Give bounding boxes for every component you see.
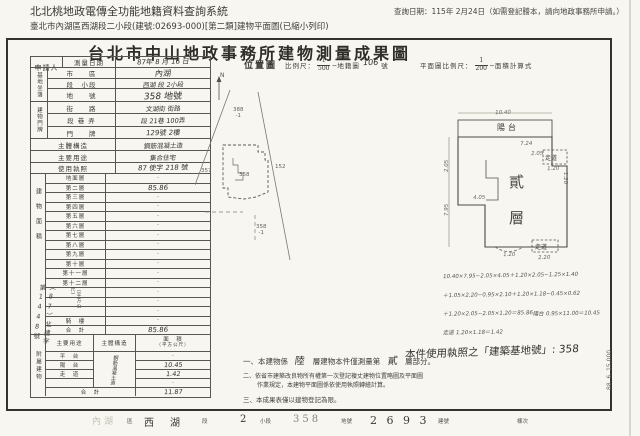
- survey-date-value: 87年 8 月 16 日: [136, 57, 190, 67]
- floor-plan-scale-label: 平面圖比例尺：: [420, 60, 473, 70]
- attached-row-value: 10.45: [135, 360, 210, 369]
- map-ref-label: ─地籍圖: [332, 60, 359, 70]
- floor-plan-sketch: 陽台 貳 層 走道 走道 10.407.242.051.201.202.057.…: [435, 95, 610, 270]
- section-value: 西湖 段 2小段: [142, 78, 184, 88]
- use-label: 主要用途: [58, 152, 88, 162]
- floor-row-label: 第十一層: [45, 268, 105, 278]
- footer-value: 西 湖: [144, 414, 183, 429]
- plan-dimension: 2.05: [444, 160, 450, 173]
- floor-area-group-label: 建物面積: [34, 188, 43, 248]
- location-map-header: 位置圖 比例尺： 1 500 ─地籍圖 106 號: [244, 58, 389, 72]
- door-group-cell: 建物門牌: [30, 101, 47, 138]
- location-map-scale-label: 比例尺：: [285, 60, 315, 70]
- city-value: 內湖: [154, 67, 171, 78]
- note-1-text-b: 層建物本件僅測量第: [313, 357, 381, 366]
- floor-row-label: 第九層: [45, 249, 105, 259]
- floor-char: 層: [509, 207, 524, 228]
- footer-label: 小段: [260, 417, 271, 425]
- survey-date-value-cell: 87年 8 月 16 日: [115, 56, 210, 67]
- street-value: 文湖街 街路: [145, 102, 181, 113]
- parcel-number: 358: [239, 173, 250, 179]
- attached-structure-value: 鋼筋混凝土造: [109, 354, 120, 384]
- system-title: 北北桃地政電傳全功能地籍資料查詢系統: [30, 3, 228, 19]
- survey-date-label-cell: 測量日期: [62, 56, 115, 67]
- location-map-scale-fraction: 1 500: [317, 58, 330, 72]
- footer-value: 2 6 9 3: [370, 414, 429, 427]
- floor-row-label: 騎 樓: [45, 316, 105, 326]
- door-group-label: 建物門牌: [35, 107, 43, 133]
- structure-value: 鋼筋混凝土造: [143, 139, 183, 150]
- floor-row-value: ·: [105, 306, 210, 316]
- site-group-cell: 基地坐落: [30, 67, 47, 101]
- lane-value: 段 21巷 100弄: [140, 115, 186, 126]
- street-label: 街 路: [67, 103, 97, 113]
- note-2-line-2: 作業規定，本建物平面圖係依使用執照轉繪計算。: [257, 380, 389, 389]
- plan-dimension: 1.20: [503, 252, 516, 258]
- plan-dimension: 7.24: [520, 141, 533, 147]
- floor-number-char: 貳: [509, 171, 524, 192]
- calc-line: 10.40×7.95−2.05×4.05＋1.20×2.05−1.25×1.40: [442, 271, 578, 282]
- attached-group-cell: 附屬建物: [30, 334, 45, 397]
- attached-row-use: 合 計: [45, 387, 135, 396]
- attached-group-label: 附屬建物: [34, 351, 42, 381]
- scale-denominator: 500: [317, 65, 330, 73]
- calc-line: 陽台 0.95×11.00＝10.45: [532, 309, 600, 319]
- attached-row-use: [45, 378, 93, 387]
- attached-row-value: 1.42: [135, 369, 210, 378]
- footer-label: 建號: [438, 417, 449, 425]
- note-1-hand-level: 貳: [387, 352, 399, 367]
- plan-dimension: 10.40: [495, 110, 512, 116]
- footer-value: 2: [240, 414, 249, 425]
- footer-label: 段: [202, 417, 208, 425]
- attached-header-use: 主要用途: [56, 339, 82, 347]
- footer-label: 地號: [341, 417, 352, 425]
- location-map-title: 位置圖: [244, 58, 277, 71]
- plan-dimension: 2.20: [538, 255, 551, 261]
- map-ref-suffix: 號: [381, 60, 389, 70]
- floor-plan-scale-fraction: 1 200: [475, 58, 488, 72]
- site-group-label: 基地坐落: [35, 72, 43, 98]
- corridor-label-bottom: 走道: [535, 242, 547, 251]
- license-value: 87 使字 218 號: [137, 163, 188, 173]
- door-label: 門 牌: [67, 128, 97, 138]
- attached-row-use: 陽 台: [45, 360, 93, 369]
- attached-row-use: 平 台: [45, 351, 93, 360]
- floor-row-value: ·: [105, 316, 210, 326]
- note-1-text-a: 一、本建物係: [243, 357, 288, 366]
- floor-row-label: 第五層: [45, 211, 105, 221]
- attached-header-area-unit: （平方公尺）: [157, 343, 190, 349]
- floor-area-unit-label: （平方公尺）: [69, 287, 81, 316]
- plan-dimension: 4.05: [473, 195, 486, 201]
- parcel-number: 357: [201, 169, 212, 175]
- note-1-hand-floors: 陸: [294, 352, 306, 367]
- note-3: 三、本成果表僅以建物登記為限。: [243, 394, 341, 404]
- plan-dimension: 2.05: [531, 151, 544, 157]
- plan-dimension: 1.20: [562, 172, 568, 185]
- attached-header-structure: 主體構造: [101, 339, 127, 347]
- door-value: 129號 2樓: [145, 127, 180, 138]
- attached-row-value: 11.87: [135, 387, 210, 396]
- license-label: 使用執照: [58, 163, 88, 173]
- section-label: 段 小段: [67, 79, 97, 89]
- scan-edge-line: [629, 0, 631, 436]
- floor-row-label: 第二層: [45, 183, 105, 193]
- floor-row-label: 第十層: [45, 259, 105, 269]
- print-line: 臺北市內湖區西湖段二小段(建號:02693-000)[第二類]建物平面圖(已縮小…: [30, 20, 329, 32]
- map-ref-number: 106: [362, 58, 378, 67]
- attached-row-value: ·: [135, 378, 210, 387]
- balcony-label: 陽台: [497, 122, 519, 133]
- floor-row-label: 第七層: [45, 230, 105, 240]
- plan-dimension: 7.95: [444, 204, 450, 217]
- floor-row-label: 第三層: [45, 192, 105, 202]
- attached-row-use: 走 道: [45, 369, 93, 378]
- query-date: 查詢日期：115年 2月24日（如需登記謄本，請向地政事務所申請。）: [394, 6, 624, 17]
- footer-value: 358: [293, 414, 321, 425]
- location-map-sketch: 388-1357358152358-1: [195, 85, 445, 305]
- structure-label: 主體構造: [58, 140, 88, 150]
- calc-line: ＋1.20×2.05−2.05×1.20＝85.86: [442, 309, 533, 320]
- note-2-line-1: 二、依省市建築改良物所有權第一次登記複丈建物位置略圖及平面圖: [243, 371, 423, 380]
- area-calc-label: ─面積計算式: [490, 60, 532, 70]
- calc-line: ＋1.05×2.20−0.95×2.10＋1.20×1.18−0.45×0.62: [442, 290, 580, 301]
- parcel-number: 152: [275, 165, 286, 171]
- use-value: 集合住宅: [149, 151, 176, 161]
- footer-value: 內湖: [92, 414, 116, 427]
- attached-structure-cell: 鋼筋混凝土造: [93, 351, 135, 387]
- attached-row-value: ·: [135, 351, 210, 360]
- form-code: 88. 6. 15,000: [606, 350, 613, 390]
- corridor-label-right: 走道: [545, 153, 557, 162]
- area-calculations: 10.40×7.95−2.05×4.05＋1.20×2.05−1.25×1.40…: [443, 262, 608, 338]
- parcel-number: 388-1: [233, 108, 244, 119]
- survey-date-label: 測量日期: [74, 57, 104, 67]
- footer-label: 區: [127, 417, 133, 425]
- attached-header-area-cell: 面 積 （平方公尺）: [135, 334, 210, 351]
- parcel-label: 地 號: [67, 90, 97, 100]
- calc-line: 走道 1.20×1.18＝1.42: [442, 328, 503, 338]
- lane-label: 段 巷 弄: [67, 115, 96, 125]
- building-info-table: 申請人 測量日期 87年 8 月 16 日 基地坐落 市 區 內湖 段 小段 西…: [30, 56, 211, 398]
- parcel-number: 358-1: [256, 225, 267, 236]
- footer-label: 棟次: [517, 417, 528, 425]
- floor-row-label: 地面層: [45, 173, 105, 183]
- plan-scale-denominator: 200: [475, 65, 488, 73]
- floor-plan-header: 平面圖比例尺： 1 200 ─面積計算式: [420, 58, 532, 72]
- floor-row-label: 第四層: [45, 202, 105, 212]
- parcel-value: 358 地號: [143, 88, 183, 101]
- plan-dimension: 1.20: [547, 166, 560, 172]
- footer-strip: 內湖區西 湖段2小段358地號2 6 9 3建號棟次: [0, 408, 640, 436]
- city-label: 市 區: [67, 68, 97, 78]
- floor-row-label: 第八層: [45, 240, 105, 250]
- floor-row-label: 第六層: [45, 221, 105, 231]
